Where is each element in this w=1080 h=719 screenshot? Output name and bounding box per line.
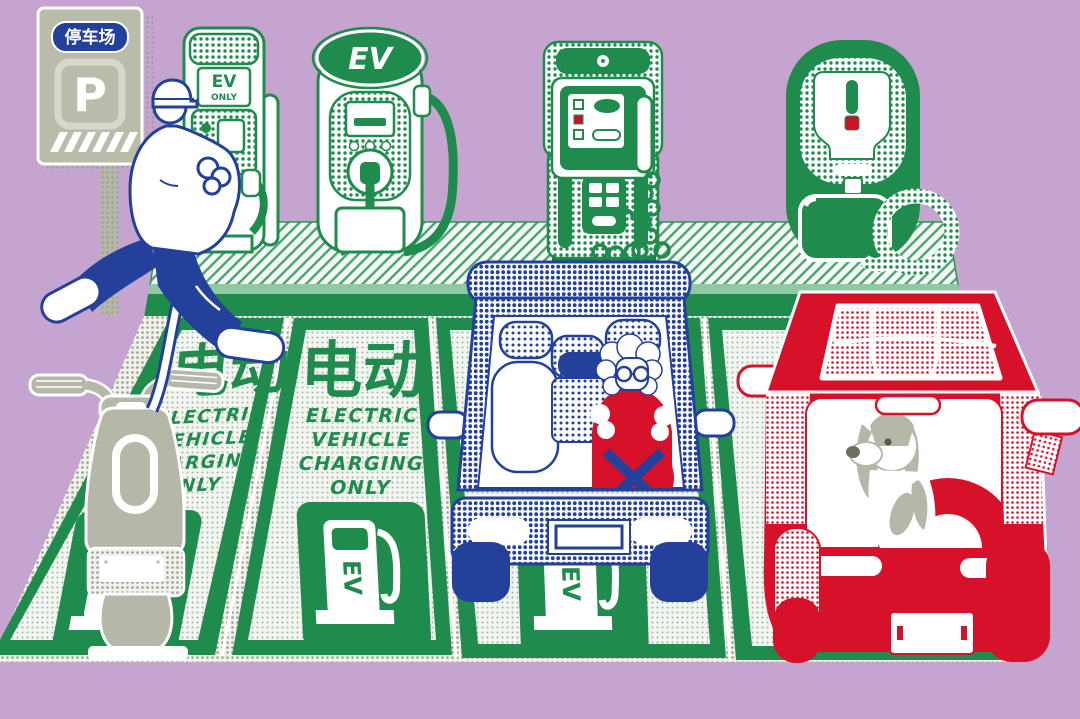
parking-symbol: P xyxy=(73,68,107,122)
passenger-seat xyxy=(492,362,558,472)
blue-car-headlight xyxy=(468,518,530,544)
station3-handset xyxy=(636,96,652,172)
spot2-english-line: ELECTRIC xyxy=(306,405,419,427)
ev-charging-illustration: 电动 ELECTRIC VEHICLE CHARGING ONLY EV 电动 … xyxy=(0,0,1080,719)
blue-car-mirror xyxy=(694,410,734,436)
station1-label: EV xyxy=(212,72,238,92)
spot2-english-line: CHARGING xyxy=(298,453,424,475)
station1-sublabel: ONLY xyxy=(211,93,238,103)
spot2-english-line: ONLY xyxy=(330,477,392,499)
red-car-taillight xyxy=(812,556,882,576)
blue-car-headlight xyxy=(630,518,692,544)
spot2-chinese-label: 电动 xyxy=(299,334,426,407)
ev-pump-icon: EV xyxy=(296,502,432,650)
spot2-english-line: VEHICLE xyxy=(311,429,412,451)
pump-ev-label: EV xyxy=(337,560,367,595)
station2-label: EV xyxy=(348,42,394,77)
parking-sign-badge-text: 停车场 xyxy=(65,27,116,48)
pump-ev-label: EV xyxy=(556,566,585,601)
red-car-wheel xyxy=(986,540,1050,662)
blue-car-wheel xyxy=(452,542,510,602)
station3-keypad xyxy=(582,176,632,234)
red-car-mirror xyxy=(1022,400,1080,434)
blue-car-wheel xyxy=(650,542,708,602)
